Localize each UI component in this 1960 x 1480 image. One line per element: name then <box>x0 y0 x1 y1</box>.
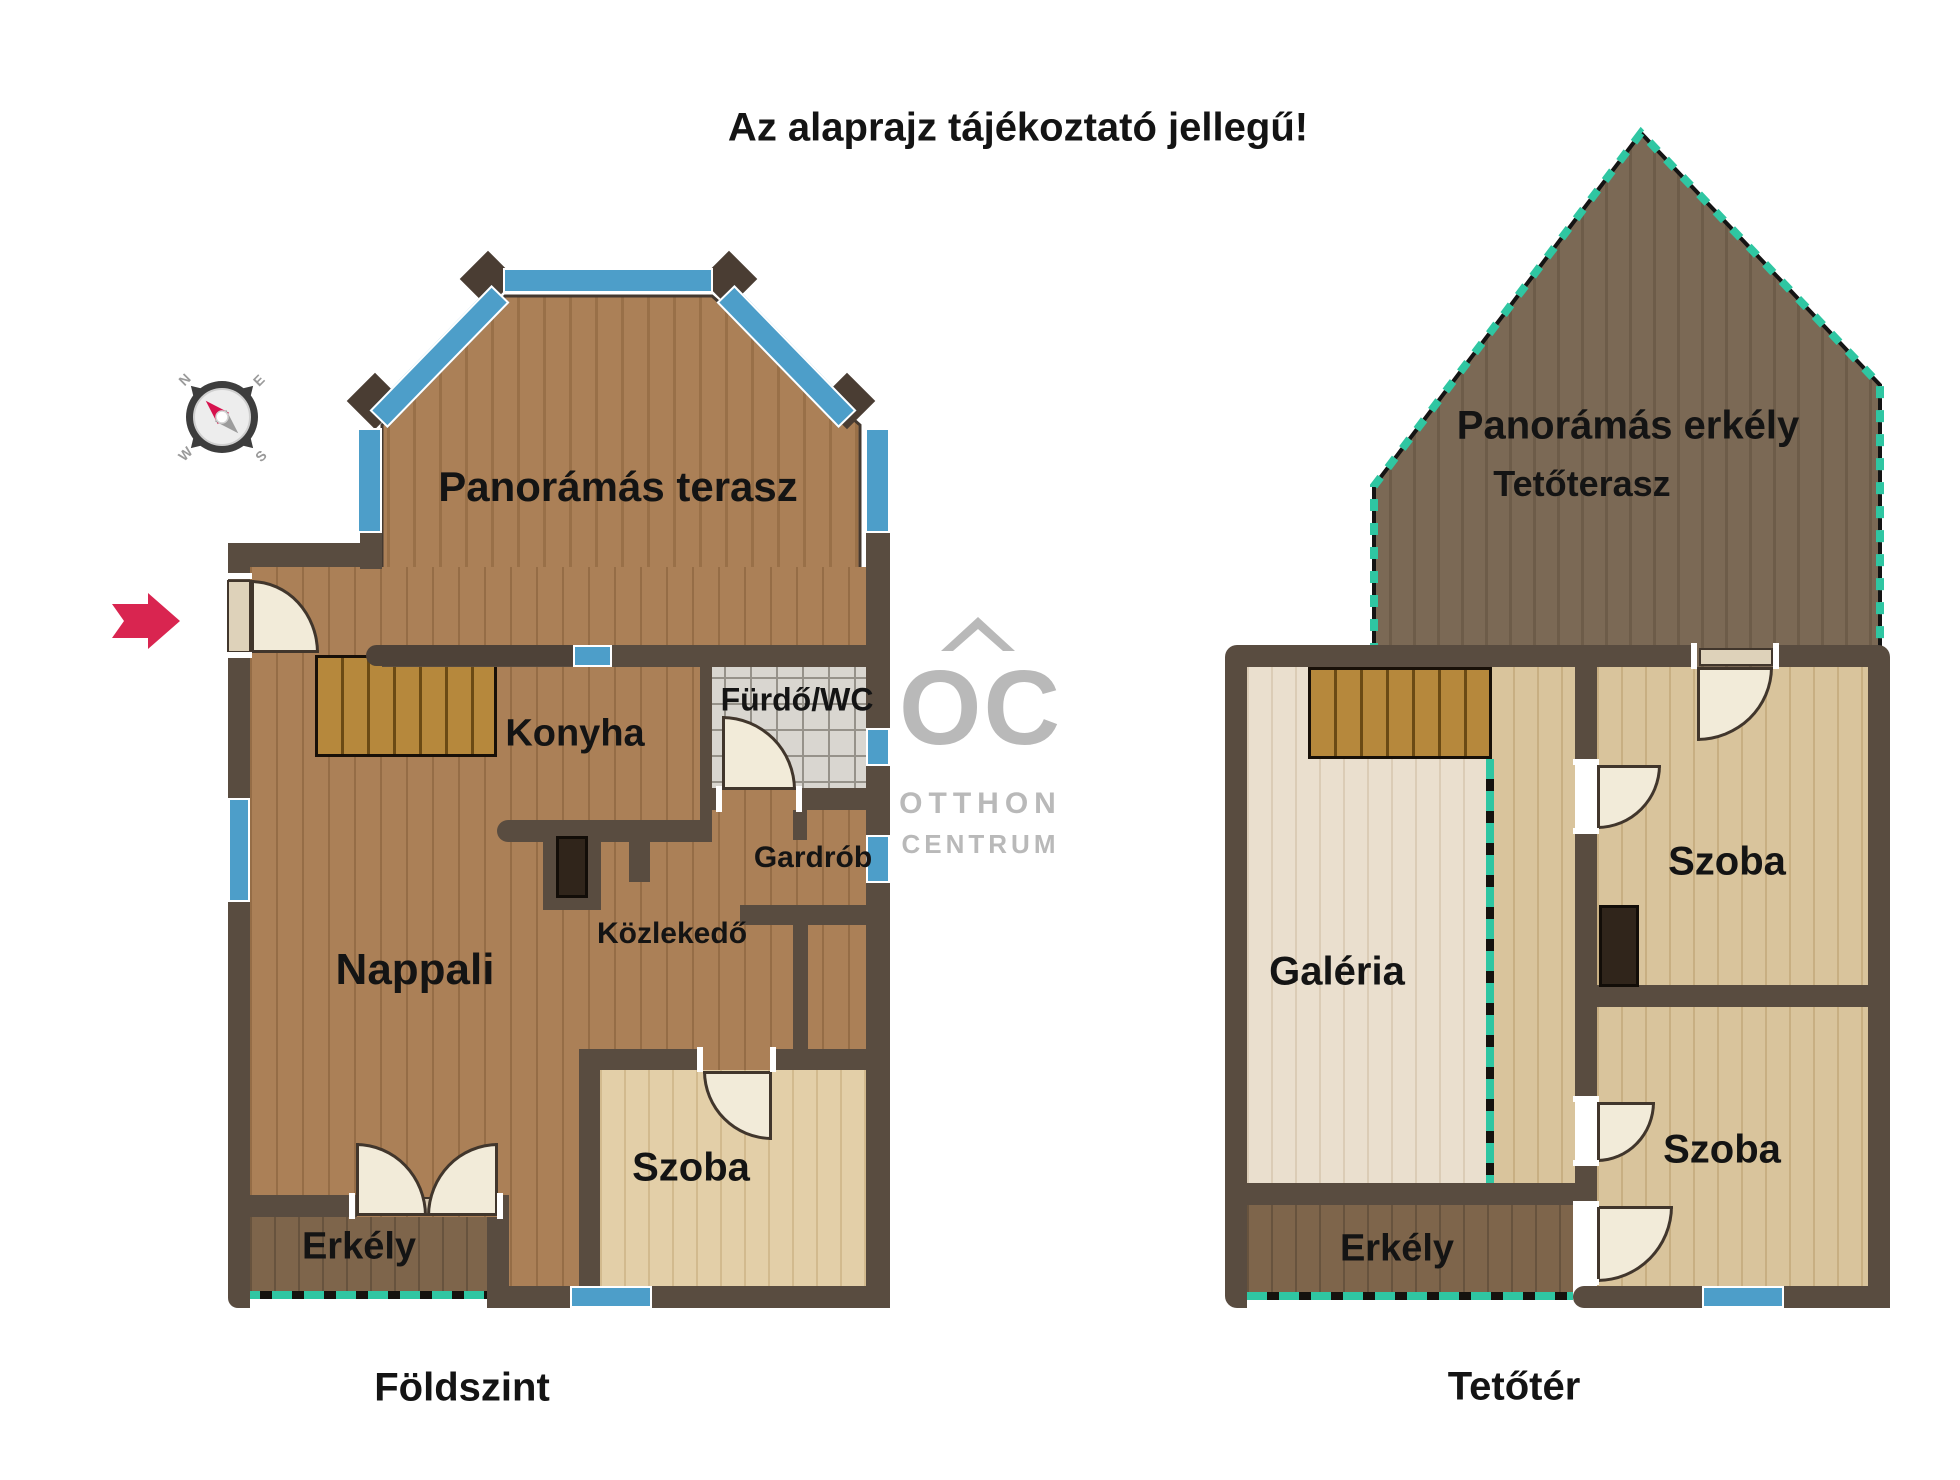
label-bedroom-upper: Szoba <box>1668 840 1786 885</box>
door-jamb <box>697 1047 703 1072</box>
wall <box>579 1049 702 1070</box>
label-balcony: Erkély <box>302 1226 416 1269</box>
kitchen-window <box>573 645 612 667</box>
wall <box>793 810 807 840</box>
logo-line1: OTTHON <box>898 787 1063 821</box>
gallery-open-edge <box>1486 759 1494 1183</box>
door-jamb <box>1573 1279 1599 1285</box>
wall <box>228 543 382 567</box>
wall <box>1225 645 1695 667</box>
attic-chimney <box>1599 905 1639 987</box>
roof-terrace-floor <box>1374 133 1880 667</box>
wall <box>629 820 650 882</box>
wall <box>1775 645 1890 667</box>
entry-arrow-icon <box>112 593 180 649</box>
label-corridor: Közlekedő <box>597 917 747 951</box>
wall <box>652 1286 890 1308</box>
wall <box>1575 830 1597 1100</box>
label-bathroom: Fürdő/WC <box>721 682 874 719</box>
roof-terrace-door-leaf <box>1699 648 1773 666</box>
door-jamb <box>716 786 722 812</box>
door-jamb <box>1573 828 1599 834</box>
door-jamb <box>226 652 252 658</box>
door-jamb <box>226 573 252 579</box>
stair-handrail <box>366 645 575 666</box>
chimney <box>556 836 588 898</box>
ground-stairs <box>315 655 497 757</box>
terrace-window-left <box>357 428 382 533</box>
door-jamb <box>1773 643 1779 669</box>
door-jamb <box>1573 1160 1599 1166</box>
label-attic-balcony: Erkély <box>1340 1228 1454 1271</box>
wall <box>1868 667 1890 1308</box>
label-kitchen: Konyha <box>505 713 644 756</box>
door-jamb <box>1691 643 1697 669</box>
logo-roof-icon <box>941 617 1015 651</box>
wall <box>800 788 868 810</box>
wall <box>1575 667 1597 765</box>
attic-balcony-edge <box>1247 1292 1573 1300</box>
logo-monogram: OC <box>898 655 1063 761</box>
caption-attic: Tetőtér <box>1448 1365 1581 1410</box>
wall <box>509 1286 570 1308</box>
wall <box>775 1049 868 1070</box>
wall <box>1247 1183 1597 1205</box>
wall <box>228 902 250 1308</box>
wall <box>1573 1286 1702 1308</box>
wall <box>228 1195 357 1217</box>
label-bedroom: Szoba <box>632 1146 750 1191</box>
compass-s: S <box>252 447 270 465</box>
bathroom-window <box>866 728 890 766</box>
terrace-window-right <box>865 428 890 533</box>
wall <box>360 533 382 569</box>
wall <box>866 766 890 835</box>
door-jamb <box>1573 1201 1599 1207</box>
caption-ground: Földszint <box>374 1366 550 1411</box>
door-jamb <box>770 1047 776 1072</box>
floor-plan-canvas: N E S W <box>0 0 1960 1480</box>
logo-line2: CENTRUM <box>898 829 1063 860</box>
wall <box>612 645 888 667</box>
label-roof-terrace: Tetőterasz <box>1493 463 1670 505</box>
label-wardrobe: Gardrób <box>754 841 872 875</box>
attic-stairs <box>1308 667 1492 759</box>
wall <box>740 905 868 925</box>
compass-icon: N E S W <box>137 334 306 503</box>
entry-door-leaf <box>227 580 251 653</box>
wall <box>487 1217 509 1308</box>
wall <box>1225 667 1247 1308</box>
label-bedroom-lower: Szoba <box>1663 1128 1781 1173</box>
wall <box>1575 985 1868 1007</box>
living-window-left <box>228 798 250 902</box>
door-jamb <box>1573 1096 1599 1102</box>
label-living: Nappali <box>336 945 495 995</box>
logo: OC OTTHON CENTRUM <box>898 655 1063 860</box>
attic-hall-floor <box>1489 667 1575 1183</box>
page-title: Az alaprajz tájékoztató jellegű! <box>728 106 1308 151</box>
label-pano-balcony: Panorámás erkély <box>1457 404 1799 449</box>
wall <box>793 925 808 1049</box>
wall <box>497 820 712 842</box>
wall <box>866 883 890 1308</box>
wall <box>1784 1286 1890 1308</box>
door-jamb <box>349 1193 355 1219</box>
label-gallery: Galéria <box>1269 950 1405 995</box>
bedroom-window <box>570 1286 652 1308</box>
door-jamb <box>1573 759 1599 765</box>
wall <box>579 1070 600 1308</box>
wall <box>700 667 712 822</box>
label-terrace: Panorámás terasz <box>438 463 798 511</box>
door-jamb <box>796 786 802 812</box>
wall <box>228 655 250 800</box>
attic-bedroom-lower-window <box>1702 1286 1784 1308</box>
terrace-window-top <box>503 268 713 293</box>
ground-balcony-edge <box>240 1291 498 1299</box>
door-jamb <box>497 1193 503 1219</box>
